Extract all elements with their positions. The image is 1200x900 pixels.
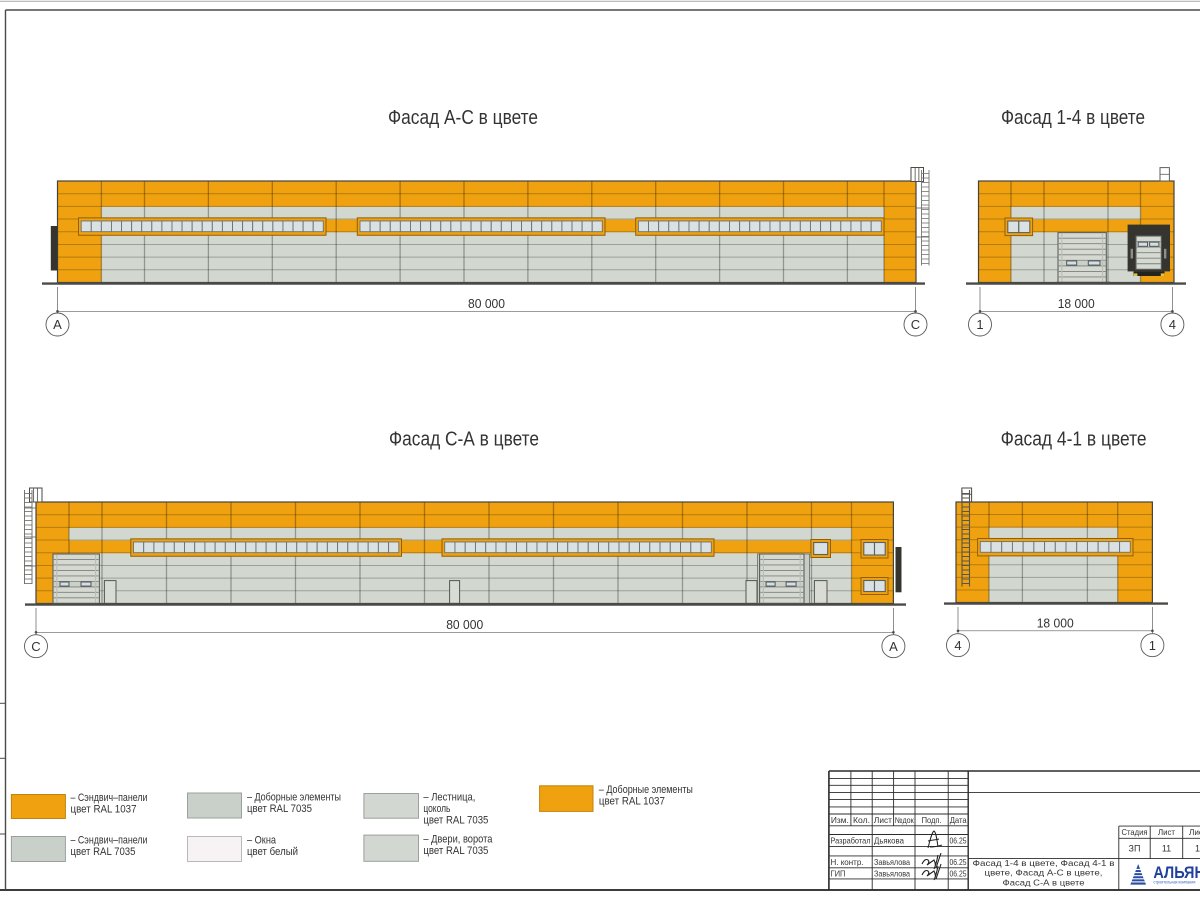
svg-text:Фасад 1-4 в цвете, Фасад 4-1 в: Фасад 1-4 в цвете, Фасад 4-1 в (973, 858, 1115, 868)
svg-text:А: А (889, 639, 898, 654)
svg-text:Фасад С-А в цвете: Фасад С-А в цвете (389, 429, 539, 451)
svg-text:Дата: Дата (950, 815, 967, 825)
svg-text:18 000: 18 000 (1037, 617, 1074, 631)
svg-text:06.25: 06.25 (950, 857, 967, 867)
svg-text:А: А (53, 317, 62, 332)
svg-text:Подп.: Подп. (922, 815, 942, 825)
svg-text:Изм.: Изм. (831, 815, 849, 825)
svg-text:80 000: 80 000 (446, 618, 483, 632)
svg-text:цоколь: цоколь (423, 803, 450, 815)
svg-text:1: 1 (1195, 844, 1200, 854)
svg-text:Стадия: Стадия (1122, 827, 1148, 837)
svg-text:80 000: 80 000 (468, 297, 505, 311)
svg-text:– Лестница,: – Лестница, (423, 792, 475, 804)
svg-text:Фасад 4-1 в цвете: Фасад 4-1 в цвете (1001, 429, 1147, 451)
svg-text:4: 4 (954, 638, 961, 653)
svg-text:Н. контр.: Н. контр. (831, 857, 864, 867)
svg-text:18 000: 18 000 (1058, 297, 1095, 311)
svg-text:– Доборные элементы: – Доборные элементы (247, 792, 341, 804)
svg-text:№док: №док (895, 815, 914, 825)
svg-text:цвет RAL 7035: цвет RAL 7035 (423, 815, 488, 827)
svg-text:– Сэндвич–панели: – Сэндвич–панели (71, 835, 148, 847)
svg-text:строительная компания: строительная компания (1153, 879, 1195, 884)
svg-text:цвет RAL 1037: цвет RAL 1037 (599, 796, 665, 808)
svg-text:цвет RAL 7035: цвет RAL 7035 (247, 803, 312, 815)
svg-text:4: 4 (1169, 317, 1176, 332)
svg-text:цвет белый: цвет белый (247, 846, 298, 858)
svg-text:1: 1 (976, 317, 983, 332)
svg-text:С: С (31, 639, 40, 654)
svg-text:– Сэндвич–панели: – Сэндвич–панели (71, 792, 148, 804)
svg-text:Фасад С-А в цвете: Фасад С-А в цвете (1003, 877, 1085, 887)
svg-text:цвете, Фасад А-С в цвете,: цвете, Фасад А-С в цвете, (985, 868, 1103, 878)
svg-text:Лис: Лис (1189, 827, 1200, 837)
svg-text:Лист: Лист (874, 815, 892, 825)
svg-text:цвет RAL 7035: цвет RAL 7035 (71, 846, 136, 858)
svg-text:Завьялова: Завьялова (874, 857, 910, 867)
svg-text:С: С (911, 317, 920, 332)
svg-text:Лист: Лист (1158, 827, 1175, 837)
svg-text:цвет RAL 1037: цвет RAL 1037 (71, 804, 137, 816)
svg-text:1: 1 (1149, 638, 1156, 653)
svg-text:Дьякова: Дьякова (874, 836, 904, 846)
svg-text:Завьялова: Завьялова (874, 868, 910, 878)
svg-text:цвет RAL 7035: цвет RAL 7035 (423, 845, 488, 857)
svg-text:Разработал: Разработал (831, 836, 871, 846)
svg-text:Фасад А-С в цвете: Фасад А-С в цвете (388, 107, 538, 129)
svg-text:Фасад 1-4 в цвете: Фасад 1-4 в цвете (1001, 107, 1145, 129)
svg-text:– Двери, ворота: – Двери, ворота (423, 834, 492, 846)
svg-text:Кол.: Кол. (853, 815, 870, 825)
svg-text:ГИП: ГИП (831, 868, 846, 878)
svg-text:06.25: 06.25 (950, 836, 967, 846)
svg-text:06.25: 06.25 (950, 868, 967, 878)
svg-text:ЗП: ЗП (1129, 844, 1141, 854)
svg-text:– Окна: – Окна (247, 835, 276, 847)
svg-text:– Доборные элементы: – Доборные элементы (599, 784, 693, 796)
svg-text:11: 11 (1162, 844, 1171, 854)
